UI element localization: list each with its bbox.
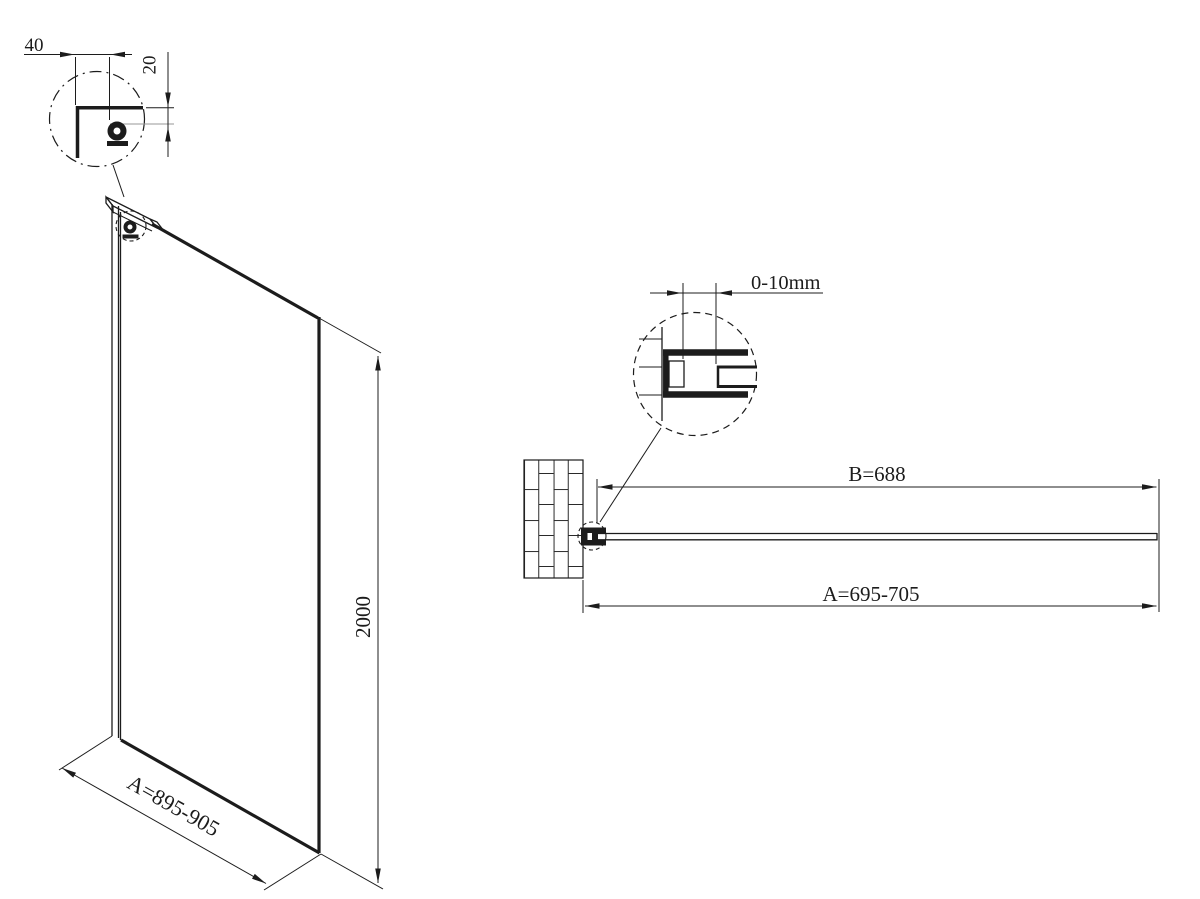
dim-2000: 2000 xyxy=(319,318,383,889)
dim-b-label: B=688 xyxy=(848,462,905,486)
dim-20: 20 xyxy=(139,52,174,157)
detail-circle-profile xyxy=(634,313,758,436)
dim-a-plan: A=695-705 xyxy=(583,580,1157,613)
profile-back xyxy=(581,528,588,546)
plan-view: B=688 A=695-705 xyxy=(524,272,1159,613)
fixing-screw-detail xyxy=(111,125,124,138)
front-view: 40 20 2000 A=895-905 xyxy=(24,35,383,890)
dim-20-label: 20 xyxy=(139,56,160,75)
detail-circle-outline xyxy=(50,72,145,167)
brick-wall xyxy=(524,460,583,578)
dim-a-plan-label: A=695-705 xyxy=(822,582,919,606)
detail-leader-line xyxy=(113,165,124,197)
dim-2000-ext-bottom xyxy=(321,854,383,889)
detail-circle-bracket xyxy=(50,72,175,167)
adjustment-block xyxy=(669,361,684,387)
dim-40-label: 40 xyxy=(25,35,44,56)
dim-2000-label: 2000 xyxy=(351,596,375,638)
wall-profile xyxy=(112,204,119,738)
technical-drawing: 40 20 2000 A=895-905 xyxy=(0,0,1200,899)
dim-a-ext-right xyxy=(264,854,321,890)
drawing-canvas: 40 20 2000 A=895-905 xyxy=(0,0,1200,899)
detail-circle-profile-outline xyxy=(634,313,757,436)
dim-adj-label: 0-10mm xyxy=(751,272,821,294)
glass-plan xyxy=(597,533,1157,541)
profile-detail-leader xyxy=(600,428,661,522)
dim-2000-ext-top xyxy=(319,318,381,353)
dim-a-ext-left xyxy=(59,736,112,770)
